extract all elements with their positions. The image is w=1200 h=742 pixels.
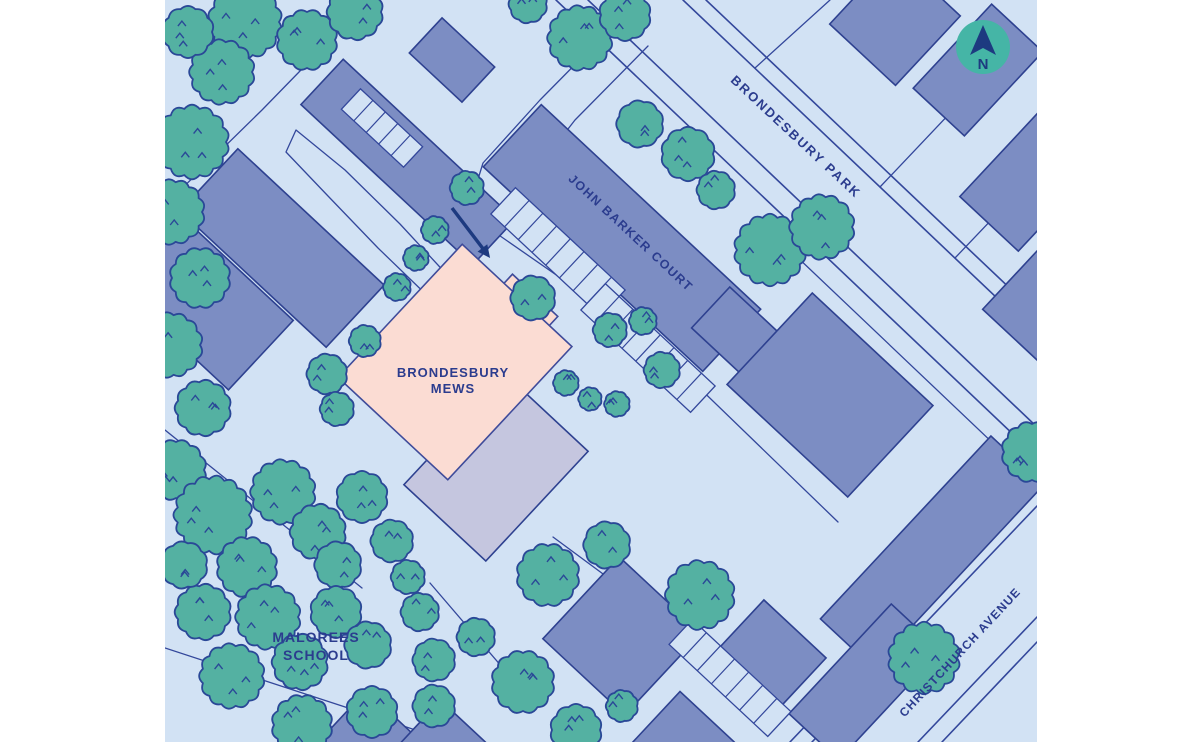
- tree: [412, 639, 454, 682]
- tree: [510, 276, 555, 321]
- tree: [616, 100, 663, 147]
- tree: [457, 618, 495, 656]
- site-label-line1: BRONDESBURY: [397, 365, 509, 380]
- tree: [644, 352, 680, 388]
- tree: [450, 171, 484, 205]
- tree: [320, 392, 354, 426]
- tree: [155, 105, 228, 180]
- tree: [401, 593, 439, 631]
- tree: [347, 686, 397, 738]
- tree: [160, 541, 207, 588]
- tree: [349, 325, 381, 357]
- north-arrow-letter: N: [978, 56, 989, 73]
- tree: [163, 6, 213, 58]
- tree: [337, 471, 387, 523]
- tree: [170, 248, 230, 308]
- school-label-line2: SCHOOL: [283, 647, 349, 663]
- tree: [421, 216, 449, 244]
- tree: [314, 541, 361, 588]
- tree: [606, 690, 638, 722]
- tree: [604, 391, 629, 417]
- site-plan-page: BRONDESBURY PARKJOHN BARKER COURTCHRISTC…: [0, 0, 1200, 742]
- site-label-line2: MEWS: [431, 381, 475, 396]
- tree: [517, 544, 579, 606]
- tree: [277, 10, 337, 70]
- tree: [370, 520, 412, 563]
- tree: [412, 685, 454, 728]
- tree: [391, 560, 425, 594]
- tree: [492, 651, 554, 713]
- tree: [306, 354, 346, 395]
- tree: [578, 387, 601, 410]
- school-label-line1: MALOREES: [272, 629, 359, 645]
- site-plan-svg: BRONDESBURY PARKJOHN BARKER COURTCHRISTC…: [0, 0, 1200, 742]
- tree: [553, 370, 578, 396]
- north-arrow: N: [956, 20, 1010, 74]
- tree: [593, 313, 627, 347]
- tree: [272, 695, 332, 742]
- tree: [662, 127, 715, 181]
- site-plan-figure: BRONDESBURY PARKJOHN BARKER COURTCHRISTC…: [0, 0, 1200, 742]
- tree: [600, 0, 650, 41]
- tree: [583, 521, 630, 568]
- map-layer: BRONDESBURY PARKJOHN BARKER COURTCHRISTC…: [119, 0, 1110, 742]
